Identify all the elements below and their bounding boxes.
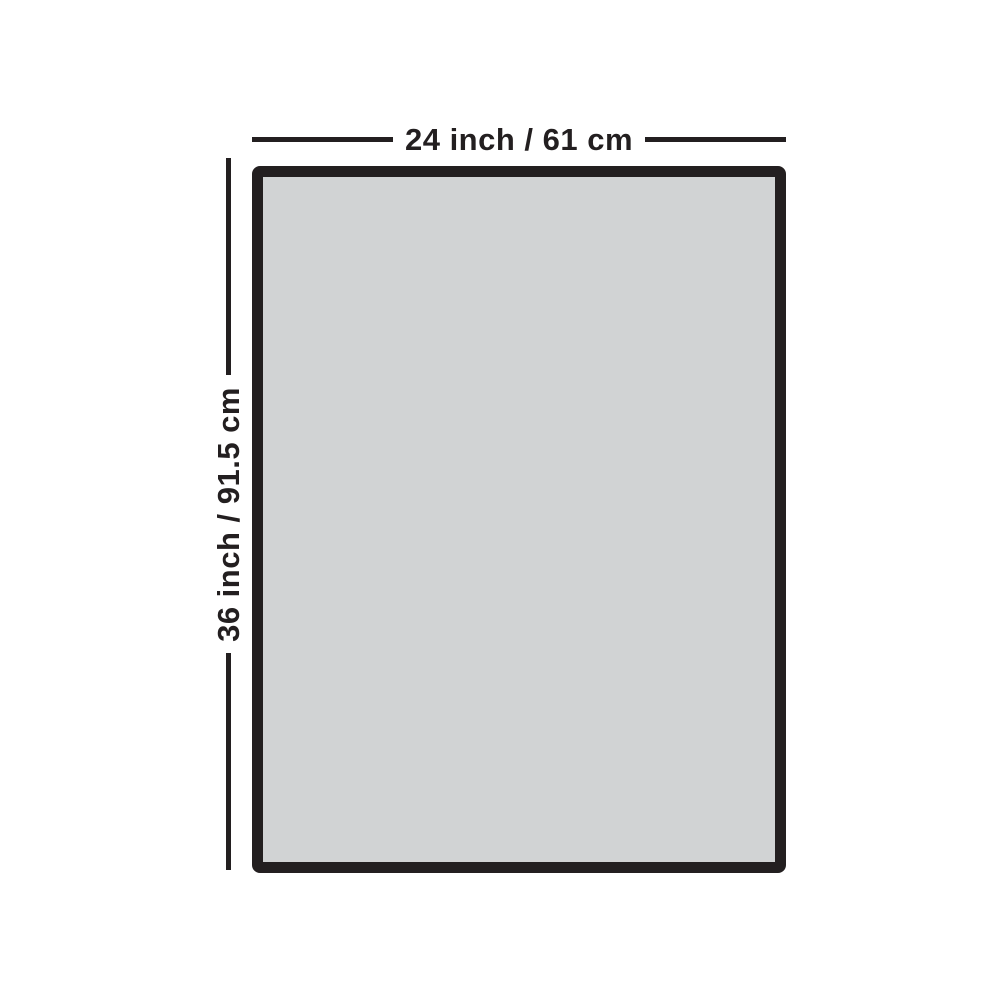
height-dimension-label: 36 inch / 91.5 cm [213,387,244,642]
width-dimension-label: 24 inch / 61 cm [405,124,633,155]
dimension-diagram: 24 inch / 61 cm 36 inch / 91.5 cm [0,0,1000,1000]
width-dimension-line-right [645,137,786,142]
product-panel [252,166,786,873]
width-dimension-line-left [252,137,393,142]
height-dimension-line-bottom [226,653,231,870]
height-dimension: 36 inch / 91.5 cm [207,158,249,870]
width-dimension: 24 inch / 61 cm [252,119,786,159]
height-dimension-line-top [226,158,231,375]
